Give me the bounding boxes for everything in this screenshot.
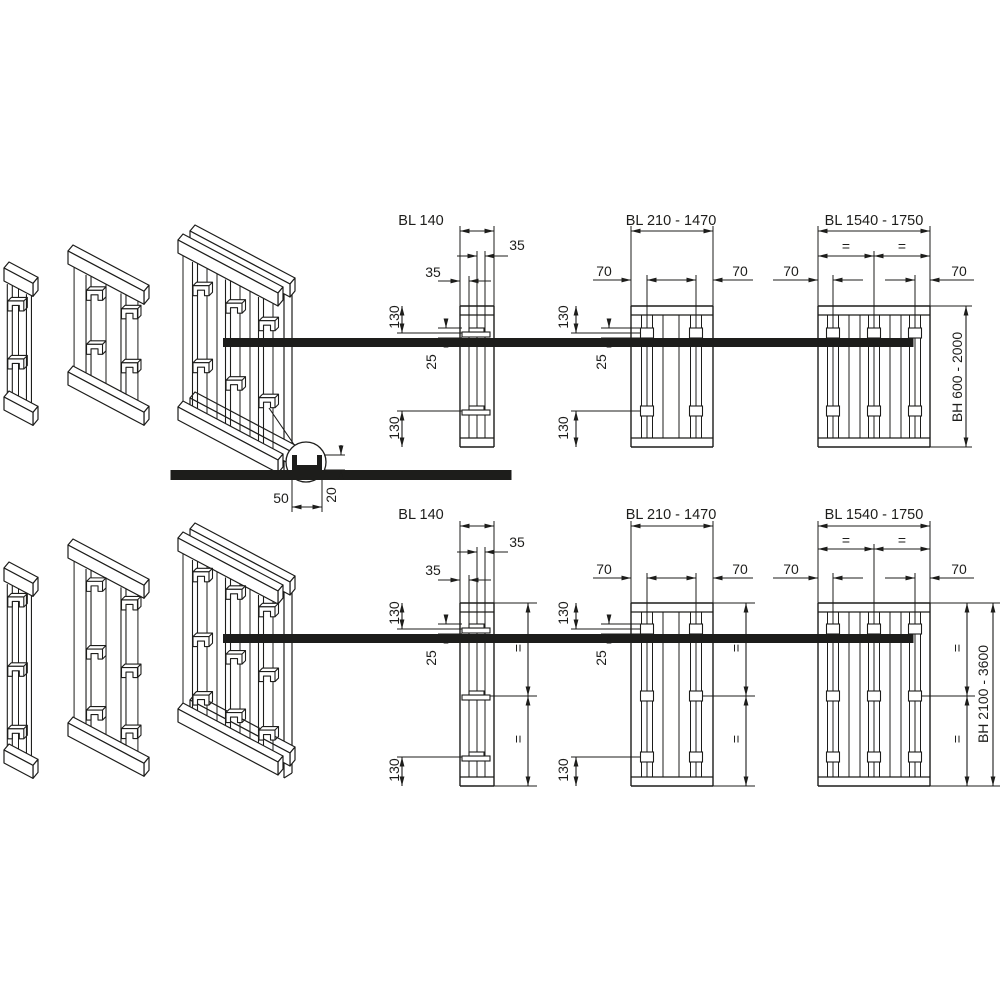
label-bottom-bl140-130-bottom: 130 — [386, 758, 402, 782]
ortho-bl1540-1750 — [773, 226, 974, 447]
label-bottom-bl140-eq-lower: = — [510, 735, 526, 743]
ortho-bl140 — [397, 226, 508, 447]
iso-frame-medium-tall — [68, 539, 149, 776]
label-bottom-bl1540-eq-left: = — [842, 532, 850, 548]
label-top-bl210-70-left: 70 — [596, 263, 612, 279]
label-bottom-bl140-35-upper: 35 — [509, 534, 525, 550]
label-bottom-bl210-title: BL 210 - 1470 — [626, 507, 717, 523]
label-top-bl140-title: BL 140 — [398, 213, 443, 229]
dimension-labels: BL 140 35 35 130 25 130 BL 210 - 1470 70… — [273, 213, 991, 782]
label-bottom-bl210-130-top: 130 — [555, 601, 571, 625]
label-top-bl210-title: BL 210 - 1470 — [626, 213, 717, 229]
label-top-bh-range: BH 600 - 2000 — [949, 332, 965, 422]
label-bottom-bl140-35-lower: 35 — [425, 562, 441, 578]
label-bottom-bl210-130-bottom: 130 — [555, 758, 571, 782]
label-top-bl140-130-bottom: 130 — [386, 416, 402, 440]
iso-frame-small-tall — [4, 562, 38, 778]
label-top-bl210-25: 25 — [593, 354, 609, 370]
label-bottom-bl1540-eq-right: = — [898, 532, 906, 548]
label-bottom-bl210-70-left: 70 — [596, 561, 612, 577]
label-bottom-bl1540-title: BL 1540 - 1750 — [825, 507, 924, 523]
label-bottom-bl210-25: 25 — [593, 650, 609, 666]
label-bottom-bl140-eq-upper: = — [510, 644, 526, 652]
label-detail-width: 50 — [273, 490, 289, 506]
label-top-bl1540-eq-left: = — [842, 238, 850, 254]
label-top-bl210-130-bottom: 130 — [555, 416, 571, 440]
label-bottom-bl1540-eq-lower: = — [949, 735, 965, 743]
iso-frame-large-tall — [178, 523, 295, 778]
label-top-bl140-25: 25 — [423, 354, 439, 370]
label-bottom-bl210-eq-upper: = — [728, 644, 744, 652]
ortho-bl210-1470 — [571, 226, 753, 447]
iso-frame-medium-short — [68, 245, 149, 425]
label-bottom-bl1540-eq-upper: = — [949, 644, 965, 652]
label-bottom-bl1540-70-right: 70 — [951, 561, 967, 577]
label-top-bl210-130-top: 130 — [555, 305, 571, 329]
label-bottom-bl1540-70-left: 70 — [783, 561, 799, 577]
label-bottom-bl140-130-top: 130 — [386, 601, 402, 625]
iso-frame-large-short — [178, 225, 295, 476]
label-bottom-bh-range: BH 2100 - 3600 — [975, 645, 991, 743]
orthographic-drawings-group — [397, 226, 1000, 786]
label-top-bl140-35-upper: 35 — [509, 237, 525, 253]
iso-frame-small-short — [4, 262, 38, 425]
label-top-bl210-70-right: 70 — [732, 263, 748, 279]
label-bottom-bl210-eq-lower: = — [728, 735, 744, 743]
label-bottom-bl140-title: BL 140 — [398, 507, 443, 523]
label-bottom-bl210-70-right: 70 — [732, 561, 748, 577]
drawing-canvas: BL 140 35 35 130 25 130 BL 210 - 1470 70… — [0, 0, 1000, 1000]
label-bottom-bl140-25: 25 — [423, 650, 439, 666]
label-top-bl1540-70-right: 70 — [951, 263, 967, 279]
label-top-bl1540-title: BL 1540 - 1750 — [825, 213, 924, 229]
label-top-bl140-130-top: 130 — [386, 305, 402, 329]
label-top-bl1540-eq-right: = — [898, 238, 906, 254]
label-top-bl140-35-lower: 35 — [425, 264, 441, 280]
label-top-bl1540-70-left: 70 — [783, 263, 799, 279]
isometric-frames-group — [4, 225, 295, 778]
label-detail-height: 20 — [323, 487, 339, 503]
ortho-bl140 — [397, 521, 537, 786]
formwork-frames-technical-drawing: BL 140 35 35 130 25 130 BL 210 - 1470 70… — [0, 0, 1000, 1000]
